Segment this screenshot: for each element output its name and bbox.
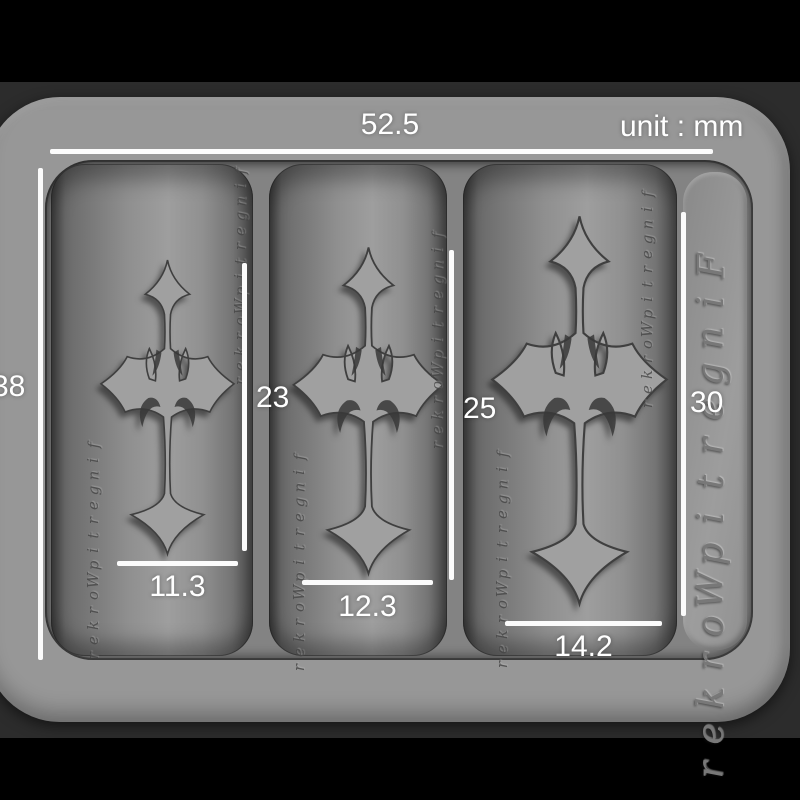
vertical-letter: W (694, 571, 730, 608)
vertical-letter: t (694, 475, 730, 489)
vertical-letter: W (495, 582, 510, 597)
vertical-letter: r (640, 401, 655, 408)
vertical-letter: r (694, 761, 730, 778)
dim-label-cavity3-width: 14.2 (505, 632, 662, 662)
vertical-letter: k (430, 411, 445, 420)
vertical-letter: e (495, 510, 510, 519)
vertical-letter: r (694, 653, 730, 670)
vertical-letter: i (292, 470, 307, 475)
vertical-letter: r (430, 307, 445, 314)
vertical-letter: o (495, 600, 510, 609)
vertical-letter: o (86, 591, 101, 600)
vertical-letter: n (694, 326, 730, 349)
vertical-letter: e (430, 426, 445, 435)
vertical-letter: e (694, 723, 730, 744)
vertical-letter: i (86, 458, 101, 463)
vertical-letter: f (495, 452, 510, 458)
watermark-text: fingertipWorker (86, 438, 101, 588)
vertical-letter: i (495, 467, 510, 472)
vertical-letter: e (430, 291, 445, 300)
vertical-letter: n (292, 483, 307, 493)
dim-label-cavity1-width: 11.3 (117, 572, 238, 602)
vertical-letter: o (430, 381, 445, 390)
vertical-letter: f (86, 443, 101, 449)
vertical-letter: e (640, 385, 655, 394)
vertical-letter: i (694, 512, 730, 524)
vertical-letter: r (640, 266, 655, 273)
vertical-letter: p (640, 310, 655, 320)
dim-label-cavity3-height: 30 (690, 388, 723, 418)
vertical-letter: f (233, 169, 248, 175)
unit-label: unit : mm (620, 112, 743, 142)
vertical-letter: f (640, 192, 655, 198)
vertical-letter: r (292, 529, 307, 536)
dim-label-cavity2-height: 25 (463, 394, 496, 424)
dim-line-cavity1-height (242, 263, 247, 551)
vertical-letter: e (233, 227, 248, 236)
vertical-letter: r (292, 664, 307, 671)
dim-line-cavity2-height (449, 250, 454, 580)
vertical-letter: g (640, 235, 655, 245)
vertical-letter: t (292, 544, 307, 550)
cross-cavity-2 (289, 243, 448, 578)
vertical-letter: r (694, 437, 730, 454)
vertical-letter: p (495, 570, 510, 580)
vertical-letter: p (430, 351, 445, 361)
vertical-letter: r (86, 517, 101, 524)
dim-line-cavity2-width (302, 580, 433, 585)
vertical-letter: g (233, 212, 248, 222)
vertical-letter: n (233, 197, 248, 207)
vertical-letter: W (86, 573, 101, 588)
dim-label-cavity2-width: 12.3 (302, 592, 433, 622)
vertical-letter: g (430, 276, 445, 286)
product-photo: fingertipWorker fingertipWorker fingerti… (0, 0, 800, 800)
vertical-letter: g (694, 362, 730, 385)
vertical-letter: o (640, 340, 655, 349)
vertical-letter: r (430, 442, 445, 449)
vertical-letter: r (640, 356, 655, 363)
watermark-text: fingertipWorker (292, 450, 307, 595)
vertical-letter: i (430, 338, 445, 343)
dim-line-cavity1-width (117, 561, 238, 566)
watermark-text: fingertipWorker (495, 447, 510, 592)
vertical-letter: k (694, 687, 730, 709)
vertical-letter: n (640, 220, 655, 230)
cross-cavity-1 (97, 256, 238, 558)
vertical-letter: g (86, 486, 101, 496)
vertical-letter: r (495, 526, 510, 533)
vertical-letter: r (86, 652, 101, 659)
vertical-letter: e (292, 648, 307, 657)
dim-line-overall-height (38, 168, 43, 660)
vertical-letter: e (86, 501, 101, 510)
vertical-letter: i (694, 296, 730, 308)
vertical-letter: o (694, 615, 730, 637)
vertical-letter: r (86, 607, 101, 614)
vertical-letter: t (430, 322, 445, 328)
vertical-letter: r (430, 397, 445, 404)
dim-label-overall-width: 52.5 (335, 110, 445, 140)
vertical-letter: k (86, 621, 101, 630)
vertical-letter: W (430, 363, 445, 378)
vertical-letter: n (495, 480, 510, 490)
dim-line-cavity3-height (681, 212, 686, 616)
vertical-letter: g (292, 498, 307, 508)
vertical-letter: k (292, 633, 307, 642)
vertical-letter: e (640, 250, 655, 259)
vertical-letter: p (694, 542, 730, 565)
brand-logo-vertical: FingertipWorker (690, 248, 734, 620)
dim-label-cavity1-height: 23 (256, 383, 289, 413)
vertical-letter: k (640, 370, 655, 379)
vertical-letter: e (292, 513, 307, 522)
watermark-text: fingertipWorker (640, 187, 655, 332)
dim-line-overall-width (50, 149, 713, 154)
vertical-letter: f (292, 455, 307, 461)
vertical-letter: i (640, 207, 655, 212)
watermark-text: fingertipWorker (430, 228, 445, 373)
vertical-letter: i (86, 548, 101, 553)
dim-line-cavity3-width (505, 621, 662, 626)
vertical-letter: n (86, 471, 101, 481)
vertical-letter: t (86, 532, 101, 538)
vertical-letter: i (640, 297, 655, 302)
vertical-letter: t (640, 281, 655, 287)
vertical-letter: t (495, 541, 510, 547)
dim-label-overall-height: 38 (0, 372, 25, 402)
vertical-letter: r (233, 243, 248, 250)
vertical-letter: W (640, 322, 655, 337)
vertical-letter: F (694, 254, 730, 279)
vertical-letter: g (495, 495, 510, 505)
vertical-letter: i (292, 560, 307, 565)
vertical-letter: p (86, 561, 101, 571)
vertical-letter: e (86, 636, 101, 645)
vertical-letter: f (430, 233, 445, 239)
vertical-letter: i (495, 557, 510, 562)
vertical-letter: i (233, 184, 248, 189)
vertical-letter: i (430, 248, 445, 253)
vertical-letter: n (430, 261, 445, 271)
